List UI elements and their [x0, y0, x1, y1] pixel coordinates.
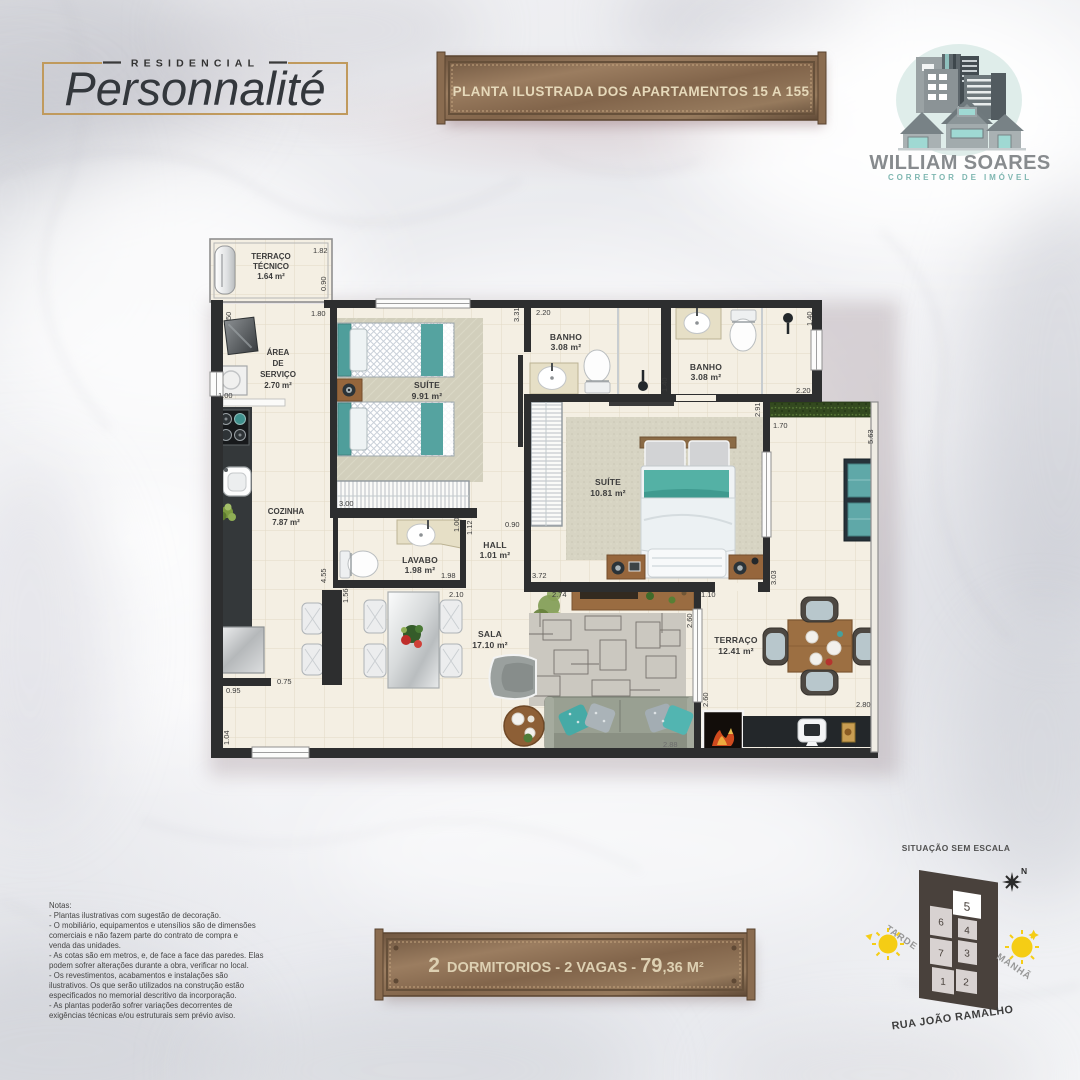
svg-text:RUA JOÃO RAMALHO: RUA JOÃO RAMALHO	[891, 1003, 1014, 1033]
svg-text:1.70: 1.70	[773, 421, 788, 430]
svg-text:TÉCNICO: TÉCNICO	[253, 262, 289, 271]
svg-text:1.10: 1.10	[701, 590, 716, 599]
svg-text:1.00: 1.00	[452, 517, 461, 532]
svg-text:2.88: 2.88	[663, 740, 678, 749]
svg-text:3.08 m²: 3.08 m²	[551, 342, 582, 352]
svg-text:2: 2	[963, 977, 969, 989]
svg-text:9.91 m²: 9.91 m²	[412, 391, 443, 401]
svg-text:2.20: 2.20	[796, 386, 811, 395]
svg-text:LAVABO: LAVABO	[402, 555, 438, 565]
svg-text:3.31: 3.31	[512, 307, 521, 322]
svg-text:0.75: 0.75	[277, 677, 292, 686]
svg-text:2.10: 2.10	[449, 590, 464, 599]
svg-text:SERVIÇO: SERVIÇO	[260, 370, 296, 379]
svg-text:3: 3	[964, 948, 970, 960]
svg-text:3.72: 3.72	[532, 571, 547, 580]
svg-text:5: 5	[964, 899, 971, 914]
svg-text:N: N	[1021, 866, 1027, 876]
svg-text:ilustrativos. Os que serão uti: ilustrativos. Os que serão utilizados na…	[49, 981, 245, 990]
svg-text:2.20: 2.20	[536, 308, 551, 317]
svg-text:2.60: 2.60	[685, 613, 694, 628]
svg-text:1.40: 1.40	[660, 377, 669, 392]
svg-text:1.82: 1.82	[313, 246, 328, 255]
svg-text:1.56: 1.56	[341, 588, 350, 603]
svg-text:ÁREA: ÁREA	[267, 348, 290, 357]
svg-text:Notas:: Notas:	[49, 901, 72, 910]
svg-text:podem sofrer alterações durant: podem sofrer alterações durante a obra, …	[49, 961, 249, 970]
svg-text:COZINHA: COZINHA	[268, 507, 305, 516]
svg-text:1.12: 1.12	[465, 520, 474, 535]
svg-text:0.90: 0.90	[505, 520, 520, 529]
svg-text:7.87 m²: 7.87 m²	[272, 518, 300, 527]
svg-text:SALA: SALA	[478, 629, 502, 639]
svg-text:WILLIAM SOARES: WILLIAM SOARES	[869, 152, 1050, 174]
svg-text:3.03: 3.03	[769, 570, 778, 585]
svg-text:17.10 m²: 17.10 m²	[472, 640, 508, 650]
svg-text:TERRAÇO: TERRAÇO	[251, 252, 291, 261]
svg-text:SUÍTE: SUÍTE	[595, 477, 621, 487]
svg-text:2.60: 2.60	[701, 692, 710, 707]
svg-text:1.01 m²: 1.01 m²	[480, 550, 511, 560]
svg-text:3.08 m²: 3.08 m²	[691, 372, 722, 382]
svg-text:12.41 m²: 12.41 m²	[718, 646, 754, 656]
svg-text:2.74: 2.74	[552, 590, 567, 599]
svg-text:- Plantas ilustrativas com sug: - Plantas ilustrativas com sugestão de d…	[49, 911, 221, 920]
svg-text:exigências técnicas e/ou estru: exigências técnicas e/ou estruturais sem…	[49, 1011, 235, 1020]
svg-text:DE: DE	[272, 359, 284, 368]
svg-text:4: 4	[964, 925, 970, 937]
svg-text:10.81 m²: 10.81 m²	[590, 488, 626, 498]
svg-text:TERRAÇO: TERRAÇO	[714, 635, 758, 645]
svg-text:1.04: 1.04	[222, 730, 231, 745]
svg-text:7: 7	[938, 948, 944, 960]
svg-text:50: 50	[224, 312, 233, 320]
svg-text:BANHO: BANHO	[550, 332, 582, 342]
svg-text:0.90: 0.90	[319, 276, 328, 291]
svg-text:6: 6	[938, 917, 944, 929]
svg-text:- O mobiliário, equipamentos e: - O mobiliário, equipamentos e utensílio…	[49, 921, 256, 930]
svg-text:BANHO: BANHO	[690, 362, 722, 372]
svg-text:especificados no memorial desc: especificados no memorial descritivo da …	[49, 991, 237, 1000]
svg-text:- As cotas são em metros, e, d: - As cotas são em metros, e, de face a f…	[49, 951, 264, 960]
svg-text:SUÍTE: SUÍTE	[414, 380, 440, 390]
svg-text:venda das unidades.: venda das unidades.	[49, 941, 121, 950]
svg-text:5.63: 5.63	[866, 429, 875, 444]
svg-text:1.98 m²: 1.98 m²	[405, 565, 436, 575]
svg-text:- As plantas poderão sofrer va: - As plantas poderão sofrer variações de…	[49, 1001, 232, 1010]
svg-text:2.80: 2.80	[856, 700, 871, 709]
svg-text:1: 1	[940, 976, 946, 988]
svg-text:2.91: 2.91	[753, 402, 762, 417]
svg-text:2.70 m²: 2.70 m²	[264, 381, 292, 390]
svg-text:- Os revestimentos, acabamento: - Os revestimentos, acabamentos e instal…	[49, 971, 229, 980]
svg-text:Personnalité: Personnalité	[64, 62, 325, 115]
svg-text:3.00: 3.00	[339, 499, 354, 508]
svg-text:SITUAÇÃO SEM ESCALA: SITUAÇÃO SEM ESCALA	[902, 843, 1011, 853]
svg-text:1.98: 1.98	[441, 571, 456, 580]
svg-text:4.55: 4.55	[319, 568, 328, 583]
svg-text:1.00: 1.00	[218, 391, 233, 400]
svg-text:HALL: HALL	[483, 540, 506, 550]
svg-text:1.40: 1.40	[805, 311, 814, 326]
svg-text:PLANTA ILUSTRADA DOS APARTAMEN: PLANTA ILUSTRADA DOS APARTAMENTOS 15 A 1…	[453, 84, 810, 99]
svg-text:1.80: 1.80	[311, 309, 326, 318]
svg-text:comerciais e não fazem parte d: comerciais e não fazem parte do contrato…	[49, 931, 238, 940]
svg-text:0.95: 0.95	[226, 686, 241, 695]
svg-text:CORRETOR DE IMÓVEL: CORRETOR DE IMÓVEL	[888, 173, 1032, 182]
svg-text:1.64 m²: 1.64 m²	[257, 272, 285, 281]
